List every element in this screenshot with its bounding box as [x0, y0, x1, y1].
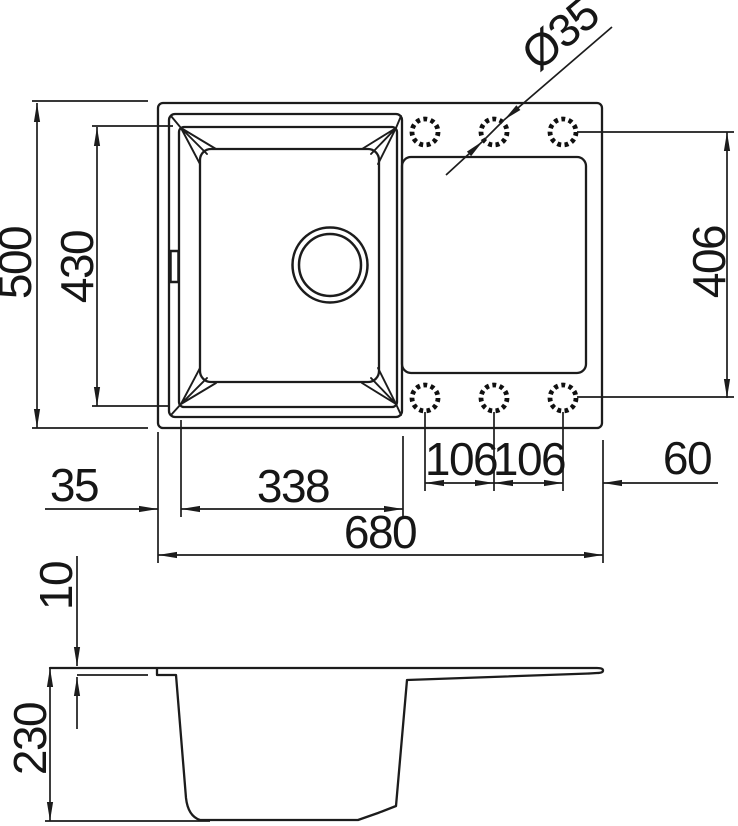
- label-hole-pitch-left: 106: [425, 433, 497, 485]
- label-hole-edge-offset: 60: [663, 432, 711, 484]
- background: [0, 0, 738, 826]
- label-overall-width: 680: [344, 506, 416, 558]
- sink-technical-drawing: 500 430 406 Ø35 35 338 680 106 106 60 10…: [0, 0, 738, 826]
- label-body-height: 230: [4, 703, 56, 775]
- label-holes-span: 406: [683, 226, 735, 298]
- label-overall-depth: 500: [0, 227, 41, 299]
- label-hole-pitch-right: 106: [493, 433, 565, 485]
- label-edge-offset: 35: [50, 459, 98, 511]
- overflow-clip-mark: [171, 251, 179, 282]
- label-bowl-depth: 430: [51, 231, 103, 303]
- label-rim-thickness: 10: [30, 562, 82, 610]
- drawing-canvas: 500 430 406 Ø35 35 338 680 106 106 60 10…: [0, 0, 738, 826]
- label-bowl-width: 338: [257, 460, 329, 512]
